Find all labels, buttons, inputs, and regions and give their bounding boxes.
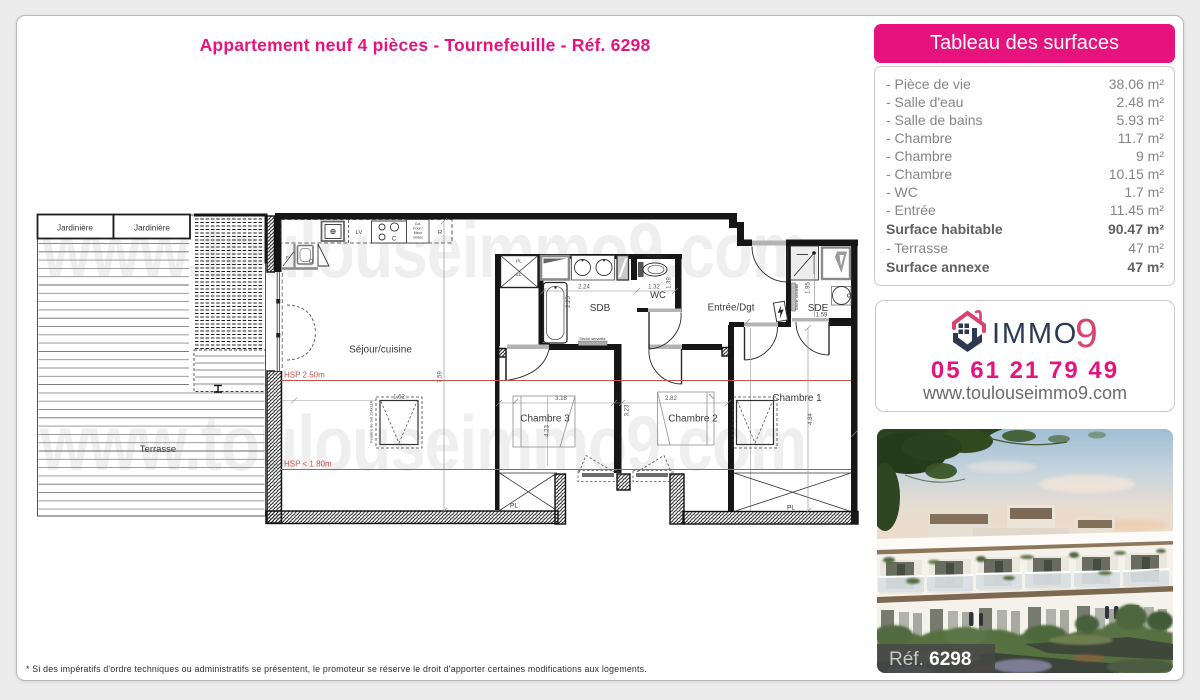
svg-text:PL: PL xyxy=(510,503,518,510)
svg-text:1.62: 1.62 xyxy=(393,395,405,401)
svg-text:Col.: Col. xyxy=(415,222,421,226)
svg-text:Chambre 1: Chambre 1 xyxy=(772,393,822,404)
svg-text:Terrasse: Terrasse xyxy=(140,444,176,455)
svg-text:1.39: 1.39 xyxy=(667,277,673,289)
svg-text:Jardinière: Jardinière xyxy=(134,224,170,233)
svg-text:F: F xyxy=(286,255,289,260)
svg-text:IMMO: IMMO xyxy=(992,318,1078,350)
svg-text:HSP < 1.80m: HSP < 1.80m xyxy=(284,460,332,469)
svg-text:Réf. 6298: Réf. 6298 xyxy=(889,649,971,670)
svg-text:HSP 2.50m: HSP 2.50m xyxy=(284,371,325,380)
svg-text:SDE: SDE xyxy=(808,303,829,314)
svg-text:2.24: 2.24 xyxy=(578,285,590,291)
svg-text:4.84: 4.84 xyxy=(808,413,814,425)
svg-text:ondes: ondes xyxy=(413,236,423,240)
svg-text:Sèche serviette: Sèche serviette xyxy=(579,337,605,341)
svg-text:2.82: 2.82 xyxy=(665,396,677,402)
svg-text:Entrée/Dgt: Entrée/Dgt xyxy=(708,303,755,314)
svg-text:Jardinière: Jardinière xyxy=(57,224,93,233)
svg-text:7.59: 7.59 xyxy=(438,371,444,383)
svg-text:Chambre 3: Chambre 3 xyxy=(520,414,570,425)
svg-text:LL: LL xyxy=(516,272,522,278)
svg-text:1.95: 1.95 xyxy=(806,282,812,294)
svg-text:C: C xyxy=(392,237,397,243)
svg-text:Fenêtre de toit 114x118: Fenêtre de toit 114x118 xyxy=(369,400,374,442)
svg-text:Four /: Four / xyxy=(413,227,422,231)
svg-text:4.23: 4.23 xyxy=(545,425,551,437)
svg-text:WC: WC xyxy=(650,290,666,301)
svg-text:R: R xyxy=(438,230,442,236)
svg-text:3.18: 3.18 xyxy=(555,396,567,402)
svg-text:WC suspendu: WC suspendu xyxy=(646,255,667,259)
svg-text:2.25: 2.25 xyxy=(566,296,572,308)
svg-text:3.23: 3.23 xyxy=(625,404,631,416)
svg-text:SDB: SDB xyxy=(590,303,611,314)
svg-text:PL: PL xyxy=(516,259,522,265)
svg-text:PL: PL xyxy=(787,505,795,512)
svg-text:Chambre 2: Chambre 2 xyxy=(668,414,718,425)
svg-text:Micro: Micro xyxy=(414,231,423,235)
svg-text:LV: LV xyxy=(356,230,363,236)
svg-text:Sèche serviette: Sèche serviette xyxy=(795,284,799,310)
svg-text:Séjour/cuisine: Séjour/cuisine xyxy=(349,345,412,356)
svg-text:9: 9 xyxy=(1075,310,1098,356)
